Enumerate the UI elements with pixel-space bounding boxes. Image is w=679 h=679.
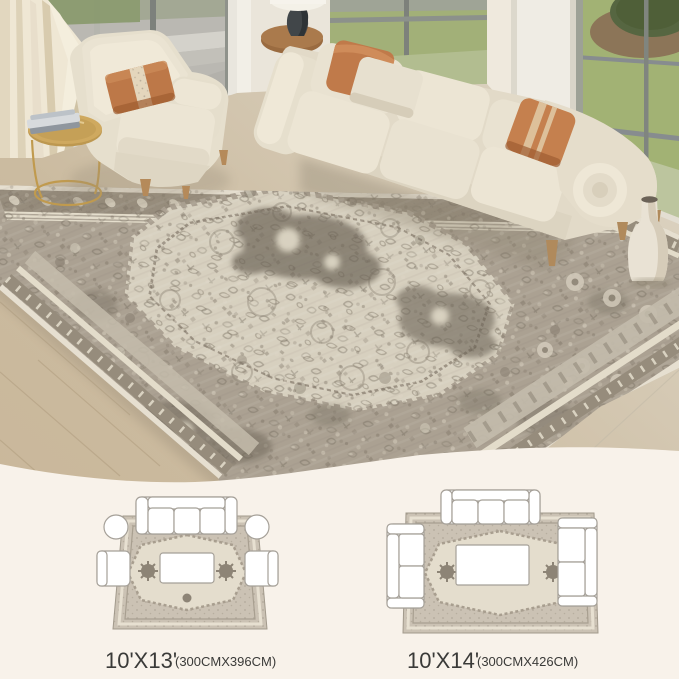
svg-text:10'X14': 10'X14' [407, 648, 479, 673]
svg-text:10'X13': 10'X13' [105, 648, 177, 673]
svg-text:(300CMX396CM): (300CMX396CM) [175, 654, 276, 669]
svg-text:(300CMX426CM): (300CMX426CM) [477, 654, 578, 669]
